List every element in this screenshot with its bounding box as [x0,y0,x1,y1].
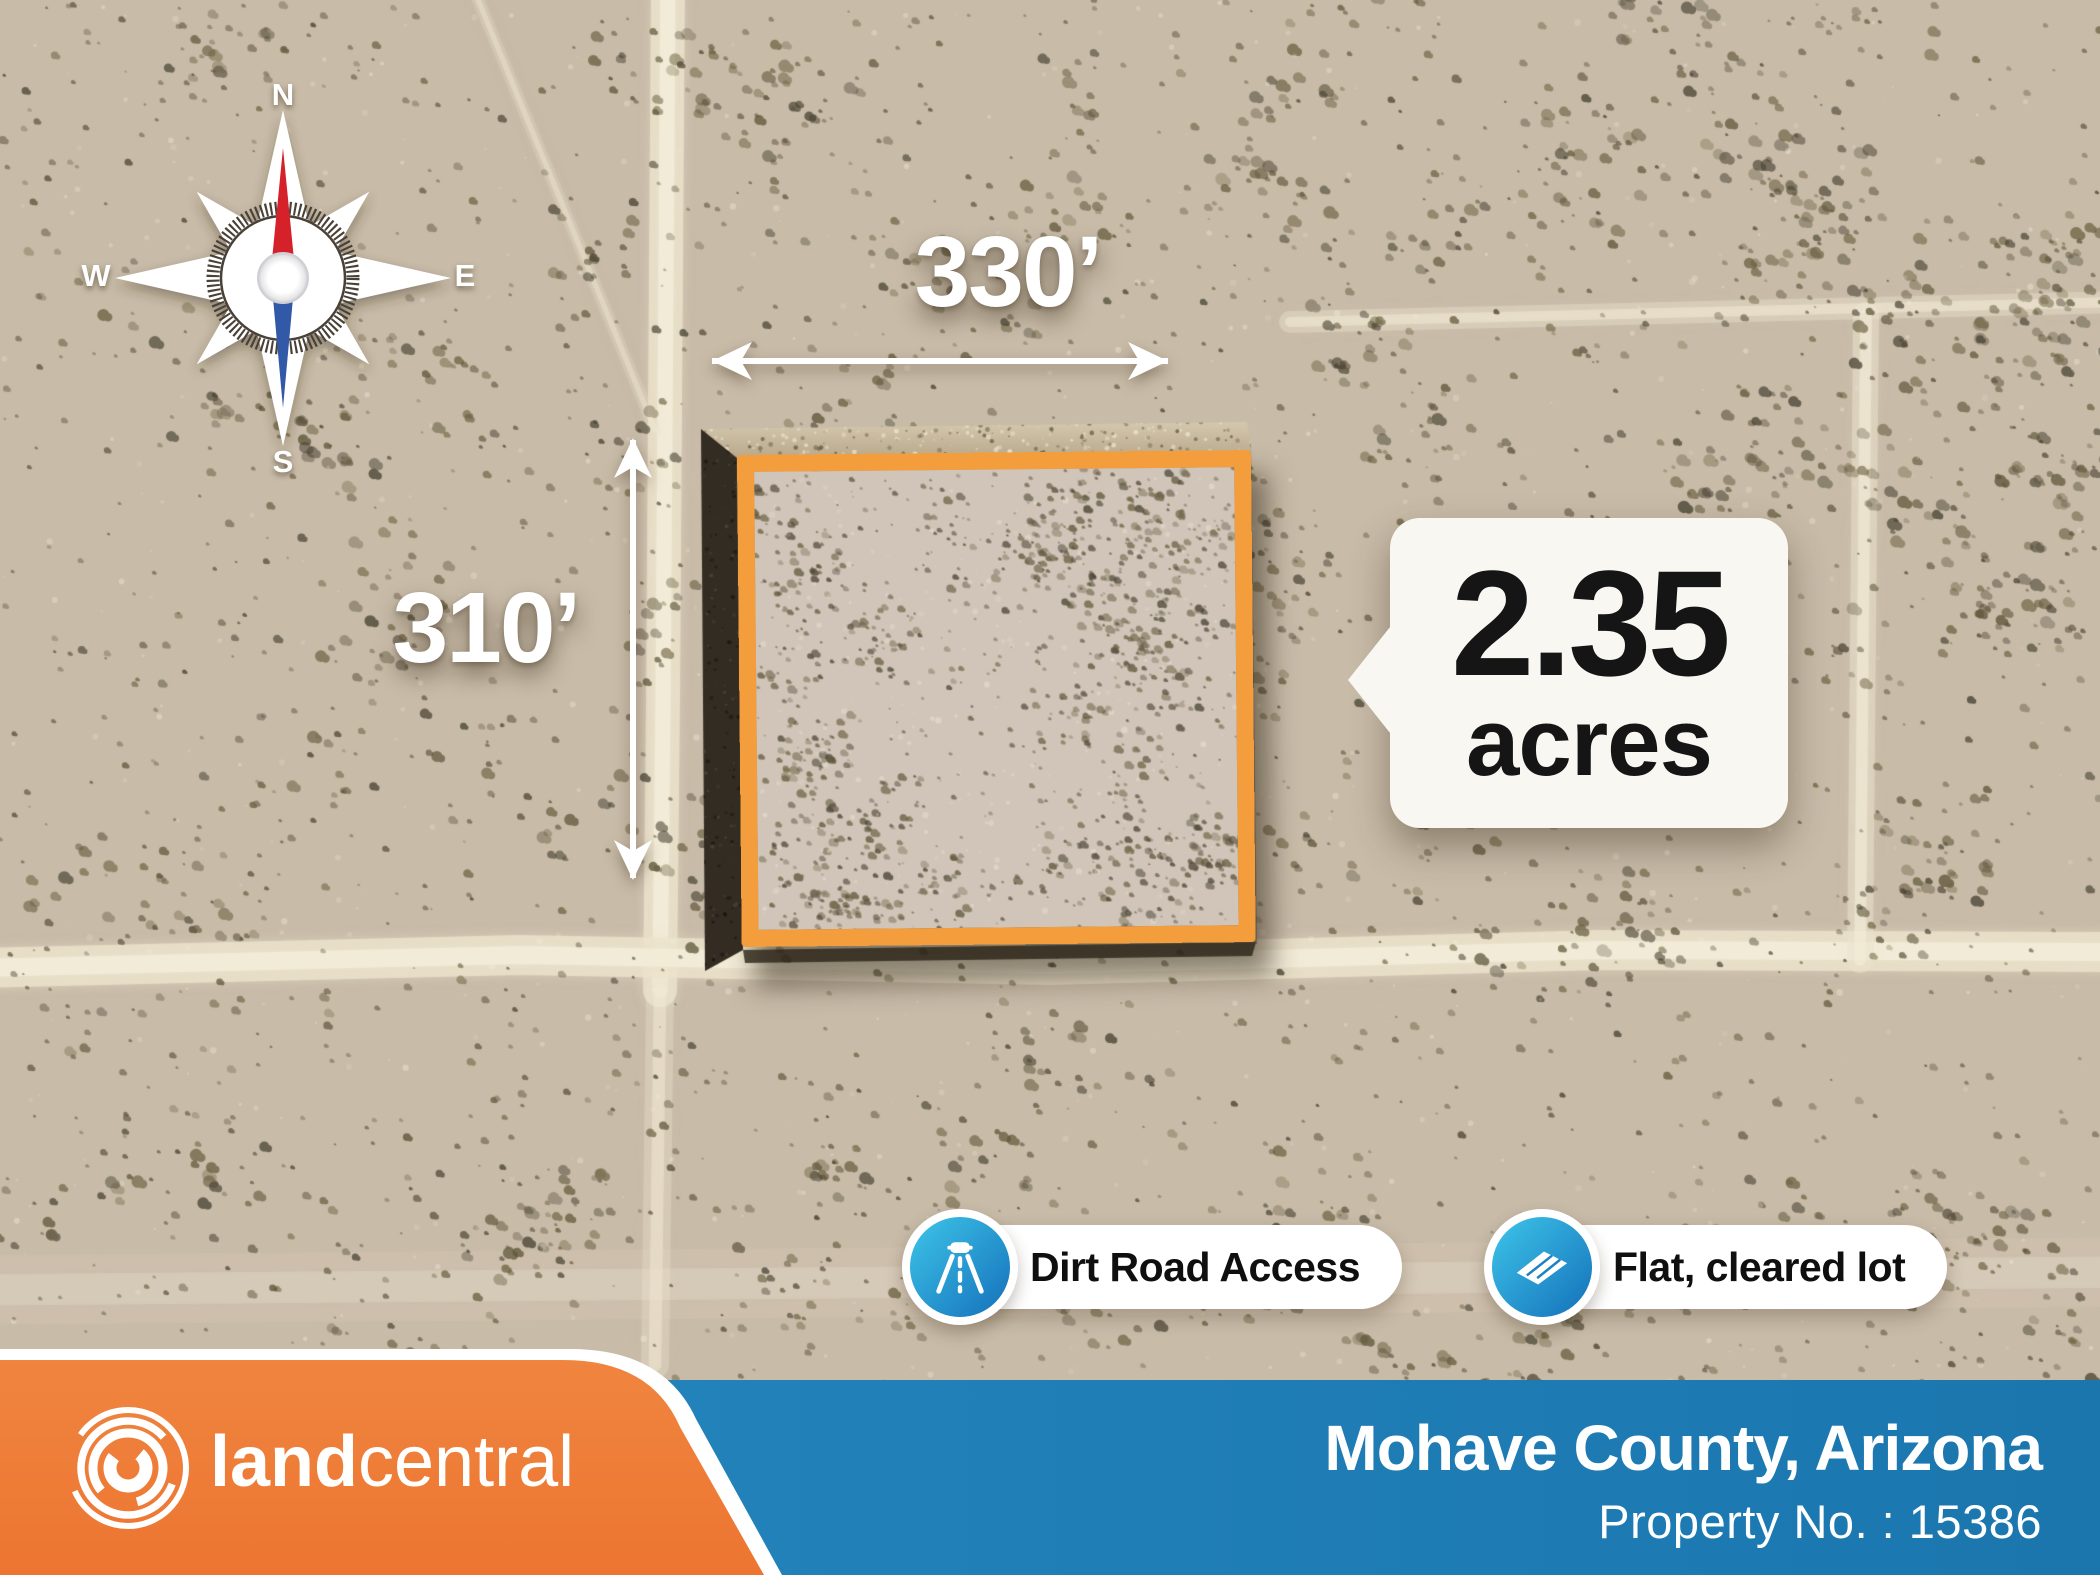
compass-south-label: S [273,444,294,480]
compass-north-label: N [272,77,294,113]
compass-east-label: E [455,258,476,294]
listing-location: Mohave County, Arizona [1324,1415,2042,1482]
acreage-callout: 2.35 acres [1390,518,1788,828]
property-boundary [737,450,1256,947]
landcentral-swirl-icon [58,1398,198,1538]
brand-wordmark: landcentral [210,1421,574,1503]
parcel-surface [754,467,1238,930]
acreage-value: 2.35 [1451,556,1727,691]
dirt-road-icon [902,1209,1018,1325]
brand-name-light: central [358,1422,574,1502]
feature-label: Dirt Road Access [1030,1244,1360,1291]
footer: landcentral Mohave County, Arizona Prope… [0,1343,2100,1575]
listing-info: Mohave County, Arizona Property No. : 15… [1324,1415,2042,1549]
compass-star [83,78,483,478]
feature-label: Flat, cleared lot [1613,1244,1905,1291]
dirt-road-glyph [929,1236,991,1298]
compass-west-label: W [81,258,110,294]
flat-lot-icon [1484,1209,1600,1325]
listing-property-number: Property No. : 15386 [1324,1494,2042,1549]
height-dimension-label: 310’ [286,578,686,678]
width-dimension-label: 330’ [808,222,1208,322]
flat-lot-glyph [1511,1236,1573,1298]
compass-rose-icon: N E S W [83,78,483,478]
acreage-unit: acres [1466,695,1712,791]
brand-name-bold: land [210,1422,358,1502]
